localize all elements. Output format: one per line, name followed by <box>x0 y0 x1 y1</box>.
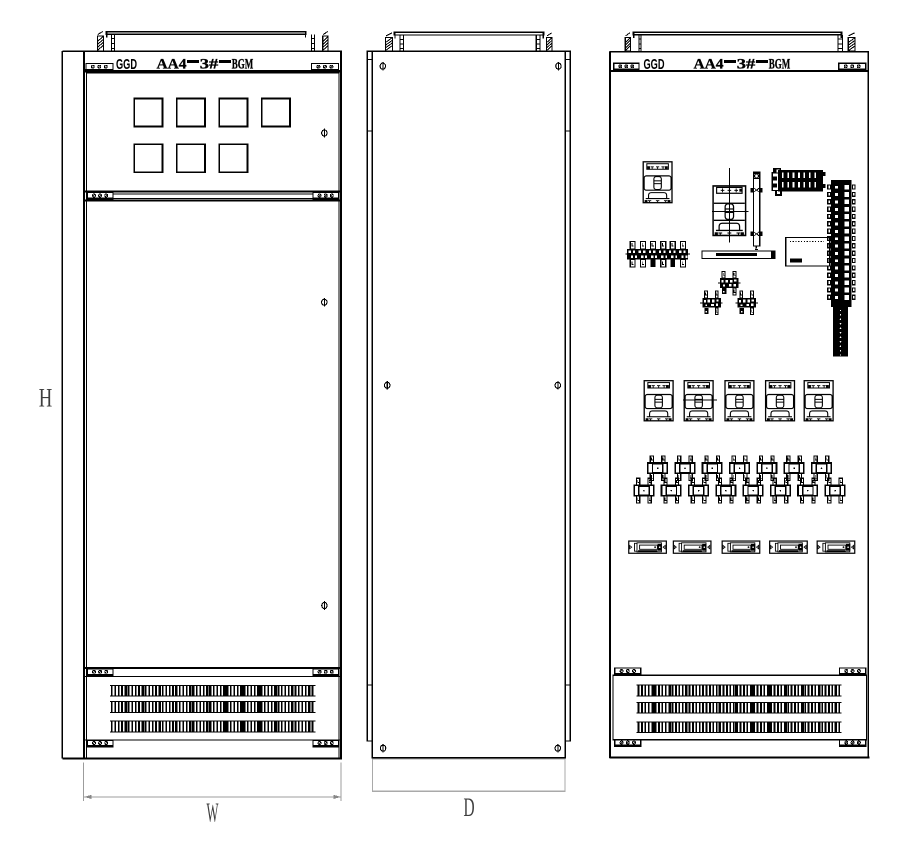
svg-text:BGM: BGM <box>232 57 254 73</box>
svg-text:D: D <box>463 793 474 822</box>
svg-text:AA4: AA4 <box>694 57 725 73</box>
svg-text:H: H <box>39 383 53 412</box>
svg-text:AA4: AA4 <box>157 57 188 73</box>
svg-text:W: W <box>207 797 219 828</box>
svg-text:3#: 3# <box>200 57 219 73</box>
svg-text:3#: 3# <box>737 57 756 73</box>
svg-text:BGM: BGM <box>769 57 791 73</box>
svg-text:GGD: GGD <box>116 56 137 73</box>
svg-text:GGD: GGD <box>644 56 665 73</box>
